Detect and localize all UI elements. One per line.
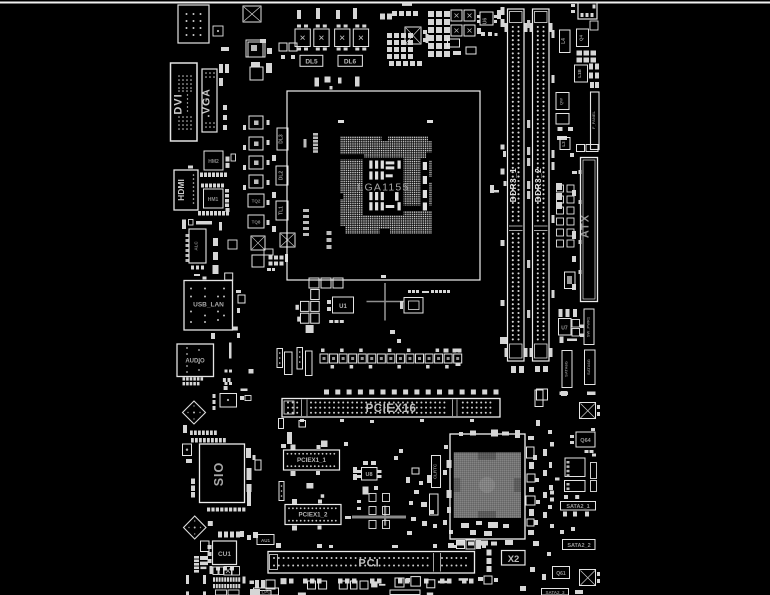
svg-text:U1: U1 bbox=[339, 304, 347, 310]
svg-text:HM1: HM1 bbox=[208, 197, 219, 203]
svg-text:PCIEX1_2: PCIEX1_2 bbox=[299, 512, 328, 519]
svg-text:F_PANEL: F_PANEL bbox=[591, 110, 596, 128]
svg-text:PCI: PCI bbox=[358, 558, 379, 570]
svg-text:PCIEX1_1: PCIEX1_1 bbox=[297, 457, 326, 464]
svg-text:QW: QW bbox=[559, 98, 564, 105]
svg-text:U6: U6 bbox=[483, 18, 489, 25]
svg-text:SIO: SIO bbox=[212, 462, 226, 487]
svg-text:DL5: DL5 bbox=[305, 59, 318, 66]
svg-text:VGA: VGA bbox=[201, 88, 213, 114]
svg-text:L1B: L1B bbox=[577, 69, 582, 78]
svg-text:DL6: DL6 bbox=[344, 59, 357, 66]
svg-text:TQ2: TQ2 bbox=[252, 199, 261, 204]
svg-text:DDR3_1: DDR3_1 bbox=[509, 168, 518, 202]
svg-text:Q61: Q61 bbox=[556, 571, 566, 577]
svg-text:PCIEX16: PCIEX16 bbox=[366, 403, 417, 415]
svg-text:U8: U8 bbox=[365, 472, 372, 478]
svg-text:TL1: TL1 bbox=[279, 206, 285, 215]
svg-text:ATX: ATX bbox=[580, 214, 592, 238]
svg-text:ALC: ALC bbox=[194, 241, 199, 251]
svg-text:DDR3_2: DDR3_2 bbox=[534, 168, 543, 202]
svg-text:U7: U7 bbox=[561, 326, 568, 332]
svg-text:SATA2_2: SATA2_2 bbox=[567, 543, 590, 549]
svg-text:L4: L4 bbox=[561, 38, 567, 44]
svg-text:SATA6G: SATA6G bbox=[586, 359, 591, 375]
svg-text:CU1: CU1 bbox=[218, 551, 231, 558]
svg-text:DL3: DL3 bbox=[279, 134, 285, 144]
svg-text:TQ8: TQ8 bbox=[252, 220, 261, 225]
svg-text:L3: L3 bbox=[561, 141, 566, 147]
svg-text:CLRTC: CLRTC bbox=[433, 463, 438, 479]
svg-text:SATA2_3: SATA2_3 bbox=[545, 590, 565, 595]
svg-text:SATA2_1: SATA2_1 bbox=[566, 504, 589, 510]
svg-text:AU1: AU1 bbox=[261, 538, 270, 543]
svg-text:Q64: Q64 bbox=[580, 438, 591, 444]
svg-text:X2: X2 bbox=[508, 554, 520, 565]
svg-text:LPC: LPC bbox=[262, 590, 272, 595]
svg-text:AUDIO: AUDIO bbox=[185, 359, 205, 365]
svg-text:HM2: HM2 bbox=[208, 159, 219, 165]
svg-text:Q4: Q4 bbox=[579, 35, 584, 42]
svg-text:DL2: DL2 bbox=[279, 171, 285, 181]
svg-text:LGA1155: LGA1155 bbox=[358, 182, 410, 194]
svg-text:SW_PWR1: SW_PWR1 bbox=[586, 316, 591, 337]
svg-text:SATA6G: SATA6G bbox=[564, 361, 569, 377]
svg-text:DVI: DVI bbox=[173, 93, 185, 114]
svg-text:USB_LAN: USB_LAN bbox=[193, 302, 224, 309]
svg-text:HDMI: HDMI bbox=[176, 179, 186, 201]
